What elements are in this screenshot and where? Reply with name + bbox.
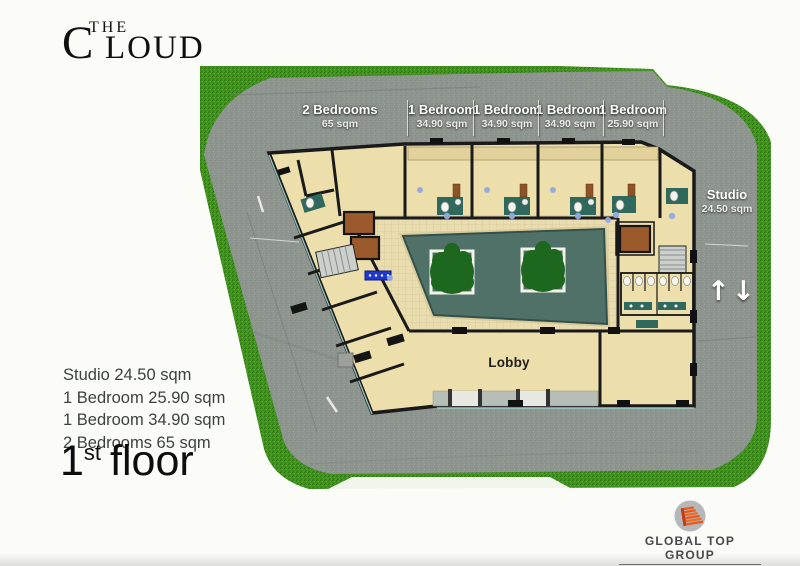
legend-item: 1 Bedroom 25.90 sqm xyxy=(63,387,225,410)
label-divider xyxy=(663,100,664,136)
label-divider xyxy=(603,100,604,136)
legend-item: 1 Bedroom 34.90 sqm xyxy=(63,409,225,432)
logo-rest: LOUD xyxy=(105,32,205,65)
floor-plan-page: C THE LOUD 2 Bedrooms 65 sqm 1 Bedroom 3… xyxy=(0,0,800,566)
floor-title: 1stfloor xyxy=(60,440,194,483)
entry-canopy xyxy=(338,353,353,367)
unit-label-1bedroom-4: 1 Bedroom 25.90 sqm xyxy=(599,102,667,130)
unit-label-1bedroom-3: 1 Bedroom 34.90 sqm xyxy=(536,102,604,130)
lobby-label: Lobby xyxy=(488,355,530,370)
unit-label-1bedroom-2: 1 Bedroom 34.90 sqm xyxy=(473,102,541,130)
balconies xyxy=(408,147,658,160)
label-divider xyxy=(473,100,474,136)
global-top-group-logo-icon xyxy=(673,499,707,533)
label-divider xyxy=(407,100,408,136)
up-arrow-icon: ↑ xyxy=(707,276,730,307)
pool xyxy=(403,229,607,324)
unit-label-2bedrooms: 2 Bedrooms 65 sqm xyxy=(302,102,377,130)
unit-label-1bedroom-1: 1 Bedroom 34.90 sqm xyxy=(408,102,476,130)
down-arrow-icon: ↓ xyxy=(732,276,755,307)
label-divider xyxy=(538,100,539,136)
page-notch xyxy=(328,477,572,489)
unit-label-studio: Studio 24.50 sqm xyxy=(702,187,753,215)
page-bottom-shadow xyxy=(0,553,800,566)
legend-item: Studio 24.50 sqm xyxy=(63,364,225,387)
